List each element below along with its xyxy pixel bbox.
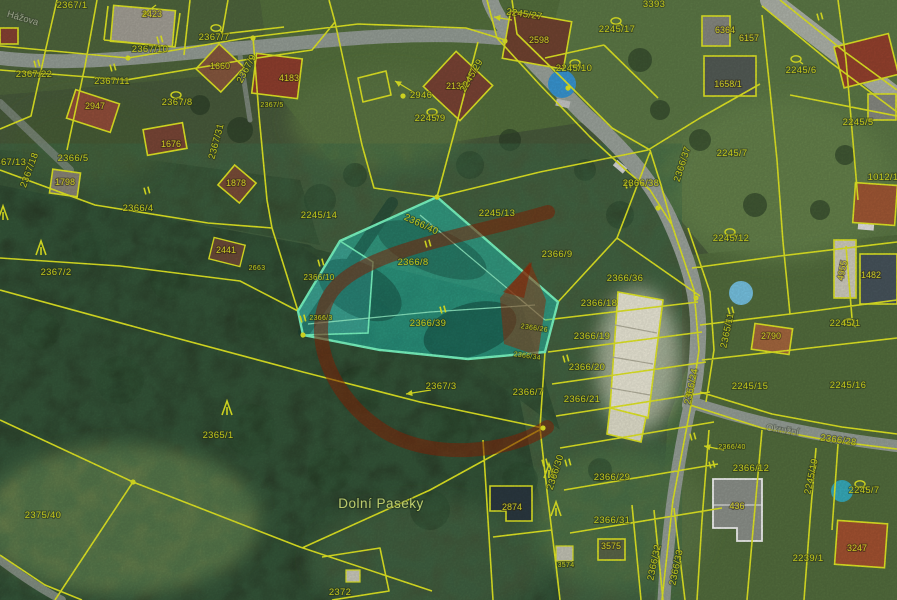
map-viewport[interactable]: 2367/124232367/102367/72367/222367/11294… [0, 0, 897, 600]
photo-grain [0, 0, 897, 600]
map-canvas[interactable]: 2367/124232367/102367/72367/222367/11294… [0, 0, 897, 600]
